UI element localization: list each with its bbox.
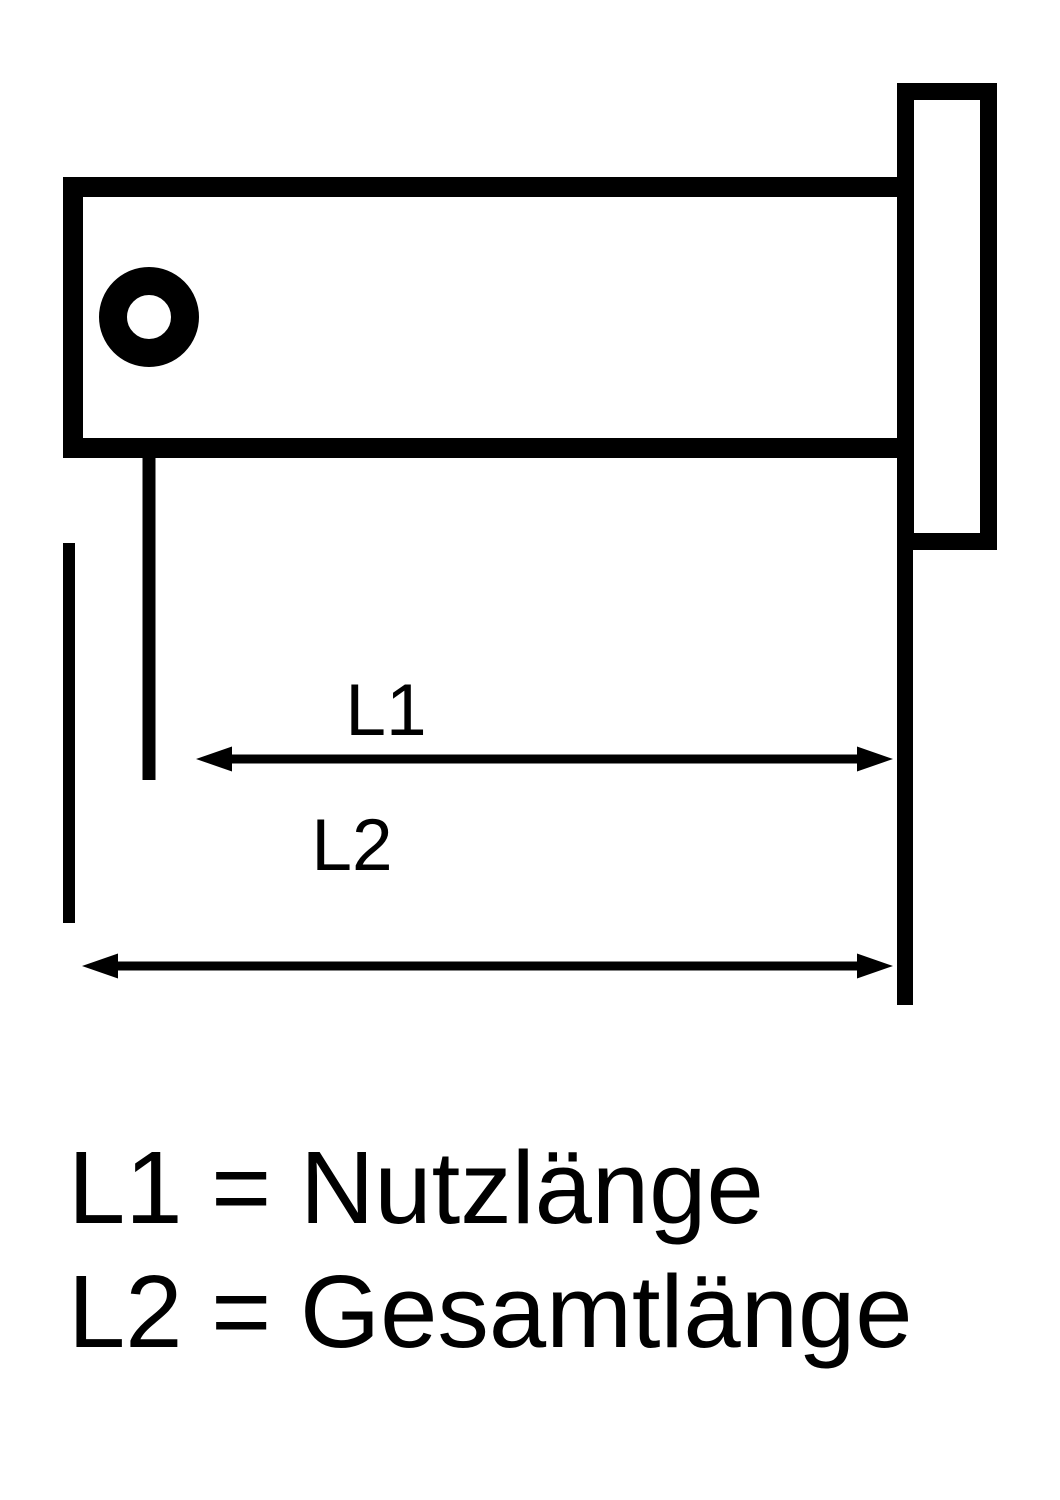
legend-line-2: L2 = Gesamtlänge bbox=[68, 1254, 913, 1369]
l1-arrowhead-right-icon bbox=[857, 747, 893, 772]
l1-dimension-label: L1 bbox=[345, 670, 426, 751]
pin-hole bbox=[113, 281, 185, 353]
legend-line-1: L1 = Nutzlänge bbox=[68, 1130, 764, 1245]
pin-head-outline bbox=[906, 92, 989, 542]
l2-arrowhead-left-icon bbox=[82, 954, 118, 979]
technical-drawing: L1 L2 L1 = Nutzlänge L2 = Gesamtlänge bbox=[0, 0, 1060, 1500]
l2-arrowhead-right-icon bbox=[857, 954, 893, 979]
l2-dimension-label: L2 bbox=[311, 805, 392, 886]
l1-arrowhead-left-icon bbox=[196, 747, 232, 772]
